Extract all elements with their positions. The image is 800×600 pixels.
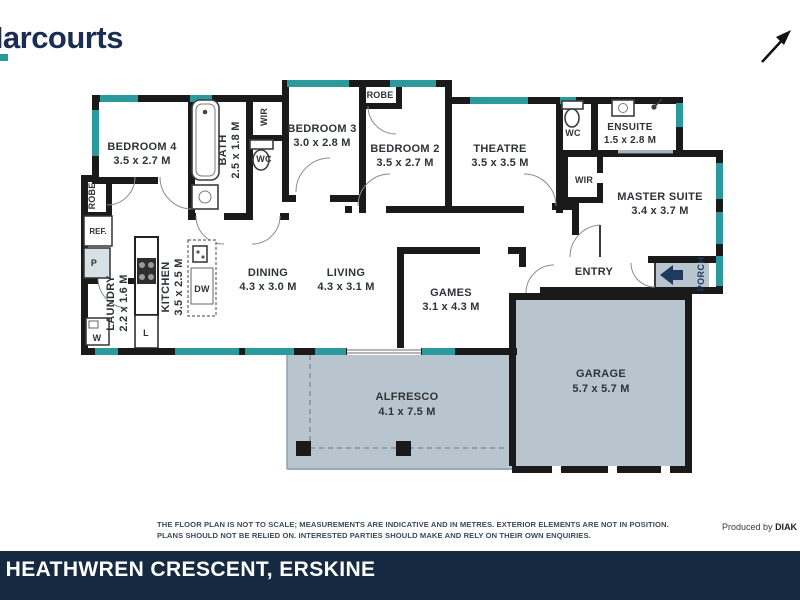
floor-plan: BEDROOM 4 3.5 x 2.7 M BEDROOM 3 3.0 x 2.…: [0, 0, 800, 600]
shower-screen: [618, 150, 673, 153]
kitchen-label: KITCHEN: [160, 262, 172, 313]
entry-label: ENTRY: [575, 266, 614, 278]
garage-dims: 5.7 x 5.7 M: [572, 383, 629, 395]
games-label: GAMES: [430, 287, 472, 299]
robe-hall-label: ROBE: [87, 183, 97, 210]
kitchen-dims: 3.5 x 2.5 M: [173, 258, 185, 315]
wir-master-label: WIR: [575, 175, 593, 185]
living-dims: 4.3 x 3.1 M: [317, 281, 374, 293]
porch-label: PORCH: [696, 257, 706, 292]
dining-label: DINING: [248, 267, 288, 279]
alfresco-label: ALFRESCO: [376, 391, 439, 403]
bedroom4-dims: 3.5 x 2.7 M: [113, 155, 170, 167]
logo-teal-tick: [0, 54, 8, 61]
address-bar: - HEATHWREN CRESCENT, ERSKINE: [0, 551, 800, 600]
disclaimer-line-2: PLANS SHOULD NOT BE RELIED ON. INTERESTE…: [157, 530, 677, 541]
linen-label: L: [143, 328, 149, 338]
sliding-door: [347, 348, 421, 355]
washer-label: W: [93, 333, 102, 343]
robe-bed-label: ROBE: [367, 90, 394, 100]
garage-label: GARAGE: [576, 368, 626, 380]
bedroom4-label: BEDROOM 4: [107, 141, 177, 153]
bedroom3-label: BEDROOM 3: [287, 123, 356, 135]
dining-dims: 4.3 x 3.0 M: [239, 281, 296, 293]
disclaimer-line-1: THE FLOOR PLAN IS NOT TO SCALE; MEASUREM…: [157, 519, 677, 530]
laundry-dims: 2.2 x 1.6 M: [118, 274, 130, 331]
fridge-label: REF.: [89, 227, 106, 236]
produced-by-brand: DIAK: [775, 522, 797, 532]
living-label: LIVING: [327, 267, 365, 279]
bath-dims: 2.5 x 1.8 M: [230, 121, 242, 178]
bedroom3-dims: 3.0 x 2.8 M: [293, 137, 350, 149]
games-dims: 3.1 x 4.3 M: [422, 301, 479, 313]
address-street: HEATHWREN CRESCENT, ERSKINE: [6, 558, 376, 581]
sink-icon: [193, 246, 207, 262]
cooktop-icon: [137, 258, 156, 284]
laundry-label: LAUNDRY: [105, 275, 117, 331]
disclaimer: THE FLOOR PLAN IS NOT TO SCALE; MEASUREM…: [157, 519, 677, 541]
north-arrow-icon: [762, 30, 791, 62]
alfresco-post: [296, 441, 311, 456]
theatre-label: THEATRE: [473, 143, 526, 155]
master-suite-dims: 3.4 x 3.7 M: [631, 205, 688, 217]
ensuite-label: ENSUITE: [607, 122, 652, 133]
harcourts-logo: Harcourts: [0, 20, 123, 56]
master-suite-label: MASTER SUITE: [617, 191, 703, 203]
dishwasher-label: DW: [194, 284, 210, 294]
alfresco-post: [396, 441, 411, 456]
bedroom2-dims: 3.5 x 2.7 M: [376, 157, 433, 169]
pantry-label: P: [91, 258, 97, 268]
toilet-icon: [562, 101, 583, 127]
produced-by-prefix: Produced by: [722, 522, 773, 532]
ensuite-dims: 1.5 x 2.8 M: [604, 135, 656, 146]
wc-ensuite-label: WC: [565, 128, 581, 138]
theatre-dims: 3.5 x 3.5 M: [471, 157, 528, 169]
wir-front-label: WIR: [259, 108, 269, 126]
alfresco-dims: 4.1 x 7.5 M: [378, 406, 435, 418]
address-text: - HEATHWREN CRESCENT, ERSKINE: [0, 558, 375, 582]
bedroom2-label: BEDROOM 2: [370, 143, 439, 155]
basin-icon: [192, 185, 218, 209]
basin-icon: [612, 100, 634, 116]
wc-front-label: WC: [256, 154, 272, 164]
produced-by: Produced by DIAK: [722, 522, 800, 532]
bath-label: BATH: [217, 135, 229, 166]
